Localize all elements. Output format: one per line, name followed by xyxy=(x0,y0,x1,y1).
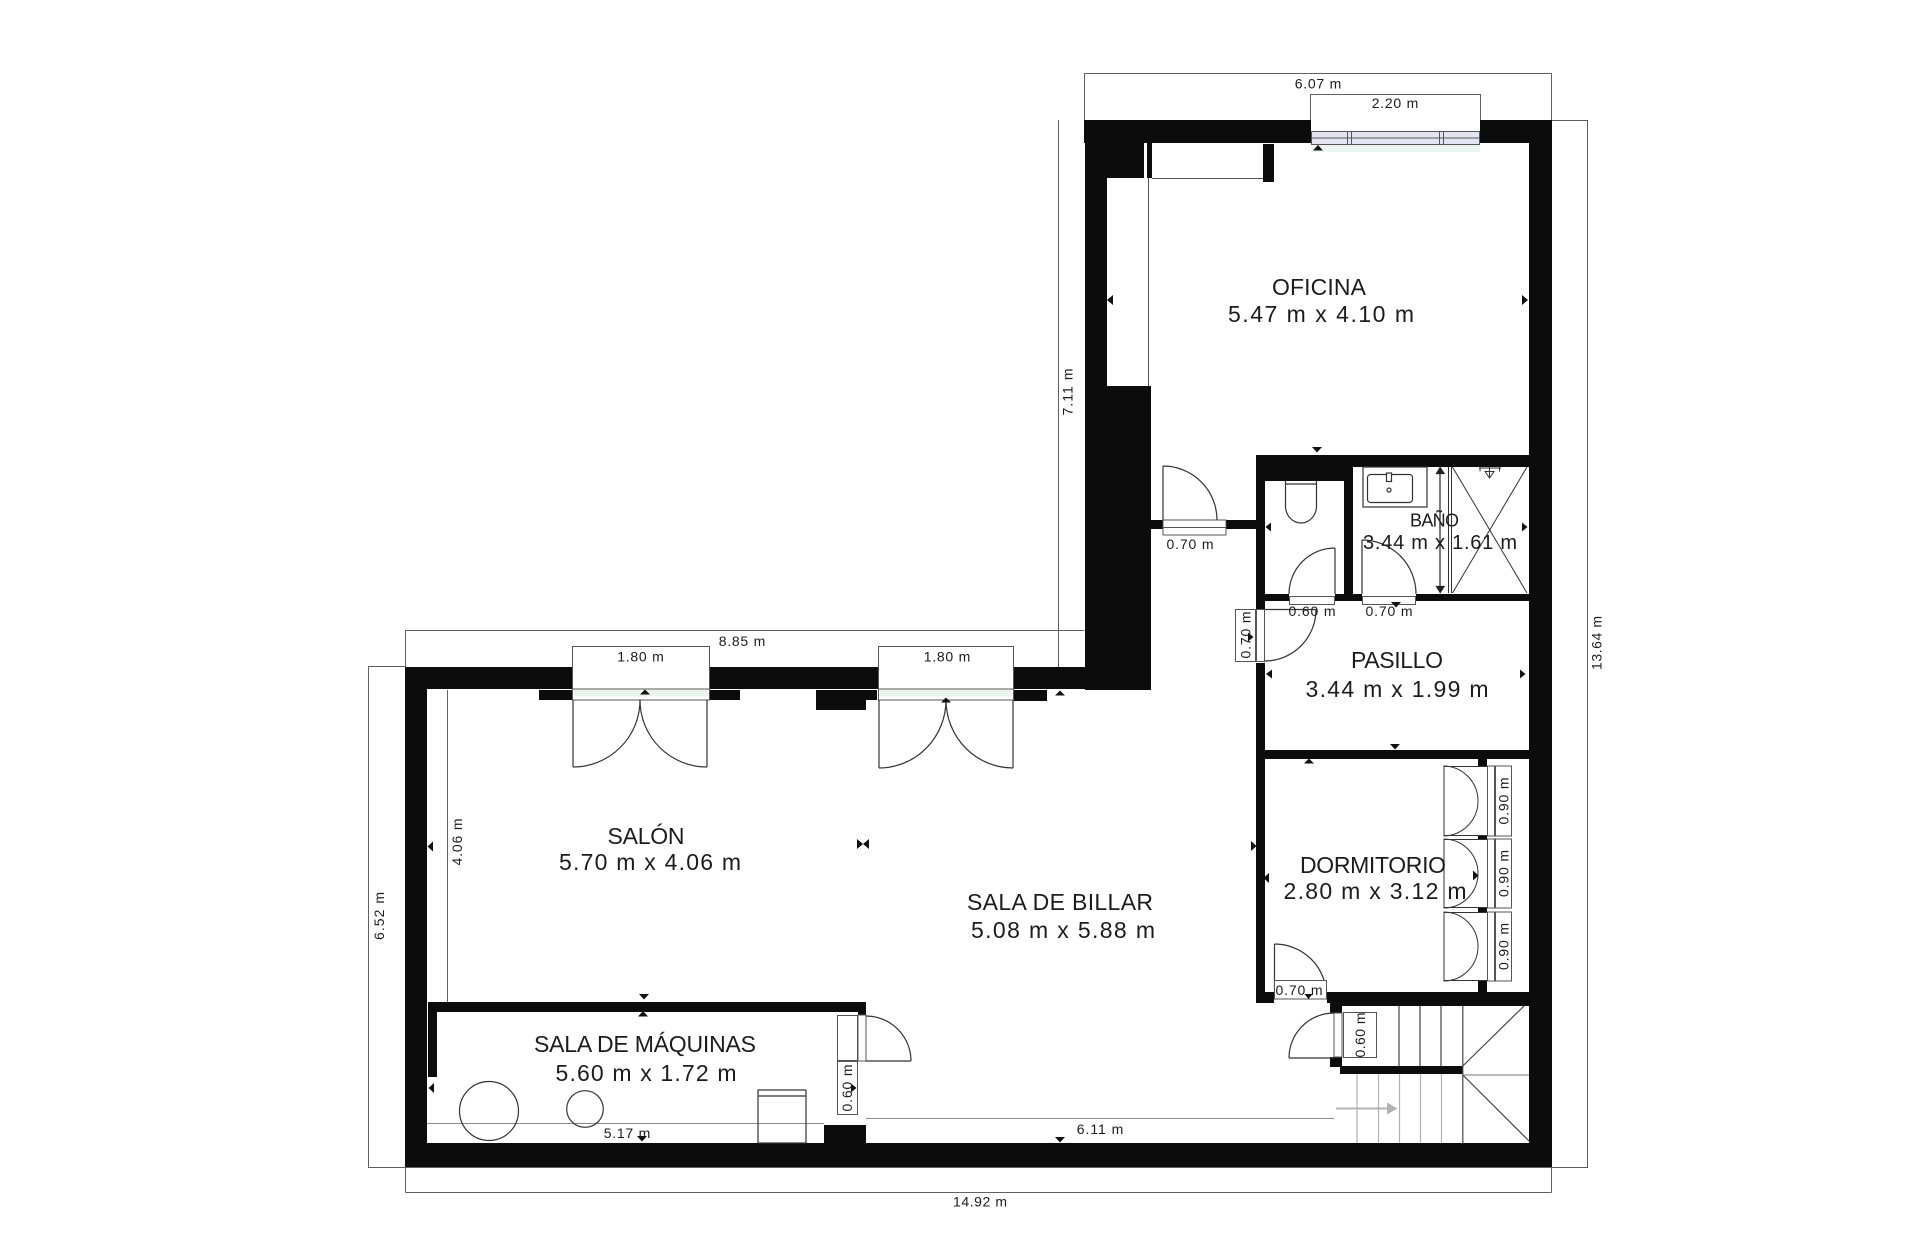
svg-text:6.11 m: 6.11 m xyxy=(1077,1121,1124,1137)
svg-text:SALÓN: SALÓN xyxy=(608,823,685,849)
svg-text:3.44 m x 1.99 m: 3.44 m x 1.99 m xyxy=(1306,676,1489,702)
svg-text:DORMITORIO: DORMITORIO xyxy=(1300,852,1446,878)
svg-text:0.60 m: 0.60 m xyxy=(1352,1013,1368,1058)
svg-text:5.70 m x 4.06 m: 5.70 m x 4.06 m xyxy=(559,849,741,875)
svg-text:SALA DE MÁQUINAS: SALA DE MÁQUINAS xyxy=(534,1031,756,1057)
svg-text:OFICINA: OFICINA xyxy=(1272,274,1367,300)
svg-text:BAÑO: BAÑO xyxy=(1410,510,1459,531)
svg-text:5.08 m x 5.88 m: 5.08 m x 5.88 m xyxy=(971,917,1155,943)
svg-text:3.44 m x 1.61 m: 3.44 m x 1.61 m xyxy=(1363,532,1517,554)
svg-text:0.70 m: 0.70 m xyxy=(1366,603,1413,619)
svg-text:5.60 m x 1.72 m: 5.60 m x 1.72 m xyxy=(556,1060,737,1086)
svg-text:0.60 m: 0.60 m xyxy=(839,1065,855,1112)
svg-text:6.07 m: 6.07 m xyxy=(1295,76,1342,92)
svg-text:8.85 m: 8.85 m xyxy=(719,633,766,649)
svg-text:6.52 m: 6.52 m xyxy=(371,892,387,940)
svg-text:2.80 m x 3.12 m: 2.80 m x 3.12 m xyxy=(1284,878,1467,904)
svg-text:0.70 m: 0.70 m xyxy=(1167,536,1214,552)
svg-text:14.92 m: 14.92 m xyxy=(953,1194,1007,1210)
svg-text:5.47 m x 4.10 m: 5.47 m x 4.10 m xyxy=(1228,301,1414,327)
svg-text:0.70 m: 0.70 m xyxy=(1238,612,1254,659)
svg-text:1.80 m: 1.80 m xyxy=(617,649,664,665)
svg-text:PASILLO: PASILLO xyxy=(1351,647,1443,673)
svg-text:0.70 m: 0.70 m xyxy=(1276,982,1323,998)
svg-text:4.06 m: 4.06 m xyxy=(449,819,465,866)
svg-text:SALA DE BILLAR: SALA DE BILLAR xyxy=(967,889,1153,915)
svg-text:1.80 m: 1.80 m xyxy=(924,649,971,665)
svg-text:5.17 m: 5.17 m xyxy=(604,1125,651,1141)
svg-text:2.20 m: 2.20 m xyxy=(1372,95,1419,111)
svg-text:0.60 m: 0.60 m xyxy=(1289,603,1336,619)
svg-text:0.90 m: 0.90 m xyxy=(1496,778,1512,825)
svg-text:13.64 m: 13.64 m xyxy=(1589,616,1605,670)
svg-text:0.90 m: 0.90 m xyxy=(1496,923,1512,970)
svg-text:0.90 m: 0.90 m xyxy=(1496,850,1512,897)
svg-text:7.11 m: 7.11 m xyxy=(1060,369,1076,416)
